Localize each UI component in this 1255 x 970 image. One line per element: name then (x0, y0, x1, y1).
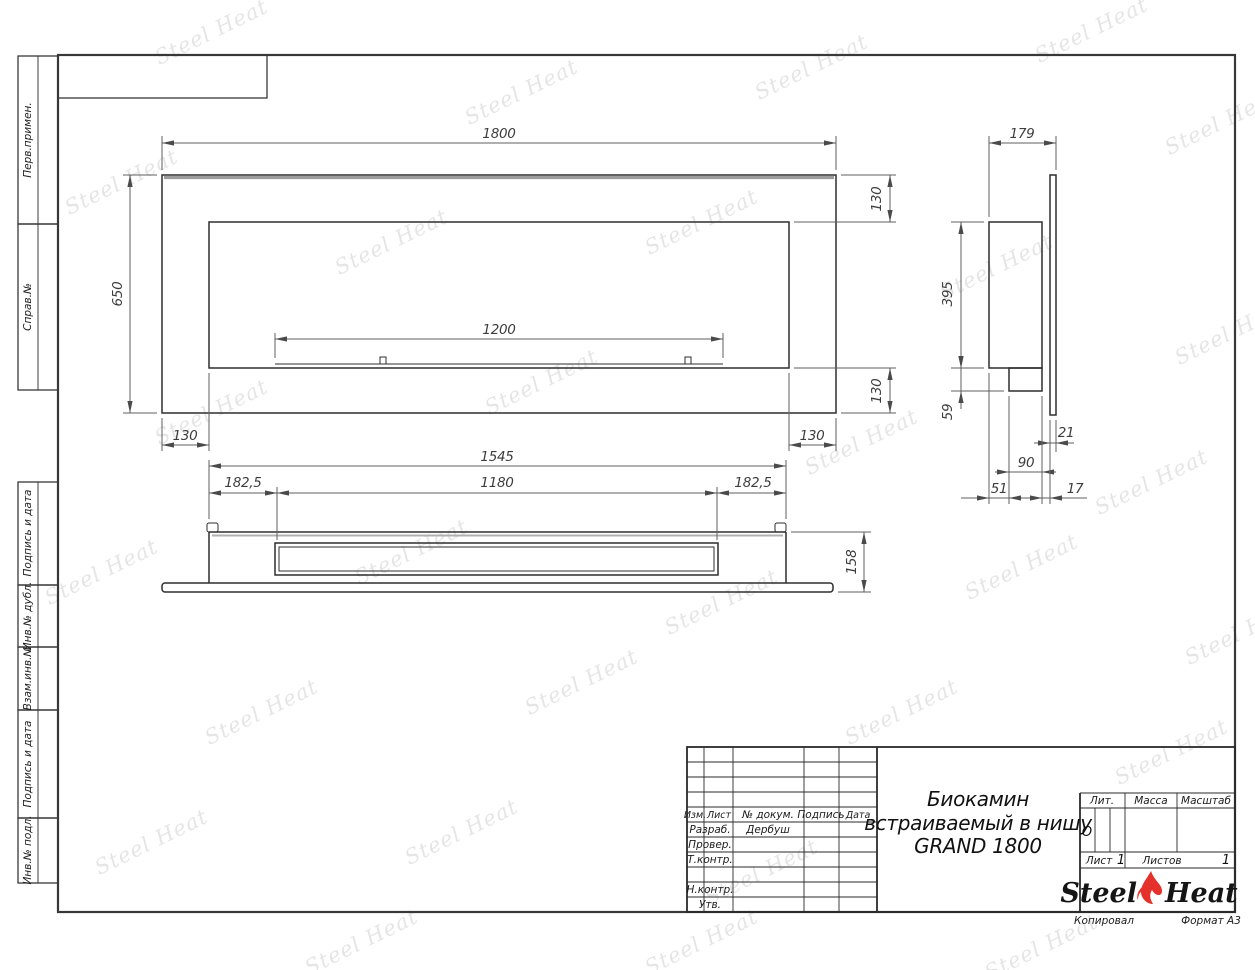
bottom-plate (162, 583, 833, 592)
left-margin-graphs: Перв.примен. Справ.№ Подпись и дата Инв.… (18, 56, 58, 885)
stamp-lit-value: О (1082, 825, 1092, 840)
stamp-listov-value: 1 (1222, 853, 1230, 868)
dim-label-top-length: 1545 (480, 449, 513, 465)
margin-label-podpis-data-1: Подпись и дата (22, 490, 34, 577)
stamp-razrab-name: Дербуш (745, 824, 790, 836)
dim-label-front-opening-width: 1200 (482, 322, 515, 338)
drawing-sheet-page: Steel HeatSteel HeatSteel HeatSteel Heat… (0, 0, 1255, 970)
margin-label-perv-primen: Перв.примен. (22, 102, 34, 177)
copied-label: Копировал (1074, 915, 1134, 927)
front-panel-flange (1050, 175, 1056, 415)
flame-icon (1137, 871, 1162, 904)
stamp-col-izm: Изм. (684, 810, 706, 821)
side-view (989, 175, 1056, 415)
stamp-role-razrab: Разраб. (689, 824, 730, 836)
dim-front-offset-bottom: 130 (794, 368, 896, 413)
stamp-role-prover: Провер. (688, 839, 732, 851)
dim-label-front-offset-right: 130 (800, 428, 825, 444)
dim-top-margin-right: 182,5 (717, 475, 786, 493)
stamp-role-utv: Утв. (699, 899, 721, 911)
dim-front-offset-left: 130 (162, 373, 209, 451)
dim-label-front-height: 650 (110, 282, 126, 307)
top-left-designation-box (58, 55, 267, 98)
stamp-masshtab-label: Масштаб (1181, 795, 1231, 807)
stamp-role-tkontr: Т.контр. (687, 854, 733, 866)
burner-box-outer (275, 543, 718, 575)
burner-box-inner (279, 547, 714, 571)
logo-word-heat: Heat (1164, 878, 1238, 909)
dim-label-side-front-offset: 51 (991, 481, 1008, 497)
dim-label-top-height: 158 (844, 550, 860, 575)
stamp-lit-label: Лит. (1089, 795, 1114, 807)
burner-clip-right (685, 357, 691, 364)
dim-label-top-burner-length: 1180 (480, 475, 513, 491)
mount-clip-left (207, 523, 218, 532)
dim-label-front-width: 1800 (482, 126, 515, 142)
steelheat-logo: Steel Heat (1060, 871, 1238, 909)
dim-front-width: 1800 (162, 126, 836, 170)
dim-side-panel-thickness: 21 (1034, 420, 1074, 452)
dim-label-top-margin-left: 182,5 (224, 475, 261, 491)
burner-clip-left (380, 357, 386, 364)
dim-top-burner-length: 1180 (277, 475, 717, 540)
dim-label-front-offset-bottom: 130 (869, 379, 885, 404)
margin-label-inv-dubl: Инв.№ дубл. (22, 582, 34, 651)
title-block: Изм. Лист № докум. Подпись Дата Разраб. … (684, 747, 1238, 912)
dim-label-side-body-height: 395 (940, 282, 956, 307)
margin-label-inv-podl: Инв.№ подл. (22, 815, 34, 884)
dim-label-front-offset-top: 130 (869, 187, 885, 212)
dim-label-top-margin-right: 182,5 (734, 475, 771, 491)
dim-front-offset-top: 130 (794, 175, 896, 222)
format-label: Формат А3 (1181, 915, 1241, 927)
dim-label-side-tray-height: 59 (940, 404, 956, 421)
side-burner-tray (1009, 368, 1042, 391)
side-body (989, 222, 1042, 368)
dim-side-tray-height: 59 (940, 352, 1004, 420)
stamp-massa-label: Масса (1134, 795, 1167, 807)
dim-front-height: 650 (110, 175, 157, 413)
dim-label-side-depth: 179 (1010, 126, 1035, 142)
dim-label-side-panel-thickness: 21 (1058, 425, 1075, 441)
dim-front-offset-right: 130 (789, 373, 836, 451)
dim-label-side-burner-depth: 90 (1018, 455, 1035, 471)
front-view (162, 175, 836, 413)
logo-word-steel: Steel (1060, 878, 1137, 909)
margin-label-sprav-no: Справ.№ (22, 283, 34, 331)
stamp-col-list: Лист (706, 810, 732, 821)
margin-label-podpis-data-2: Подпись и дата (22, 721, 34, 808)
dim-side-body-height: 395 (940, 222, 984, 368)
stamp-list-label: Лист (1085, 855, 1113, 867)
dim-top-margin-left: 182,5 (209, 475, 277, 540)
stamp-col-podpis: Подпись (797, 809, 844, 821)
product-name-line-1: Биокамин (927, 787, 1029, 811)
dim-label-front-offset-left: 130 (173, 428, 198, 444)
top-view (162, 523, 833, 592)
mount-clip-right (775, 523, 786, 532)
dim-front-opening-width: 1200 (275, 322, 723, 358)
stamp-list-value: 1 (1117, 853, 1125, 868)
dim-side-depth: 179 (989, 126, 1056, 217)
stamp-role-nkontr: Н.контр. (687, 884, 734, 896)
margin-label-vzam-inv: Взам.инв.№ (22, 646, 34, 711)
stamp-listov-label: Листов (1141, 855, 1181, 867)
stamp-col-doc: № докум. (741, 809, 794, 821)
dim-label-side-gap: 17 (1067, 481, 1084, 497)
product-name-line-2: встраиваемый в нишу (864, 811, 1093, 835)
product-name-line-3: GRAND 1800 (914, 834, 1042, 858)
dim-side-gap: 17 (1028, 452, 1084, 504)
drawing-sheet: Перв.примен. Справ.№ Подпись и дата Инв.… (0, 0, 1255, 970)
